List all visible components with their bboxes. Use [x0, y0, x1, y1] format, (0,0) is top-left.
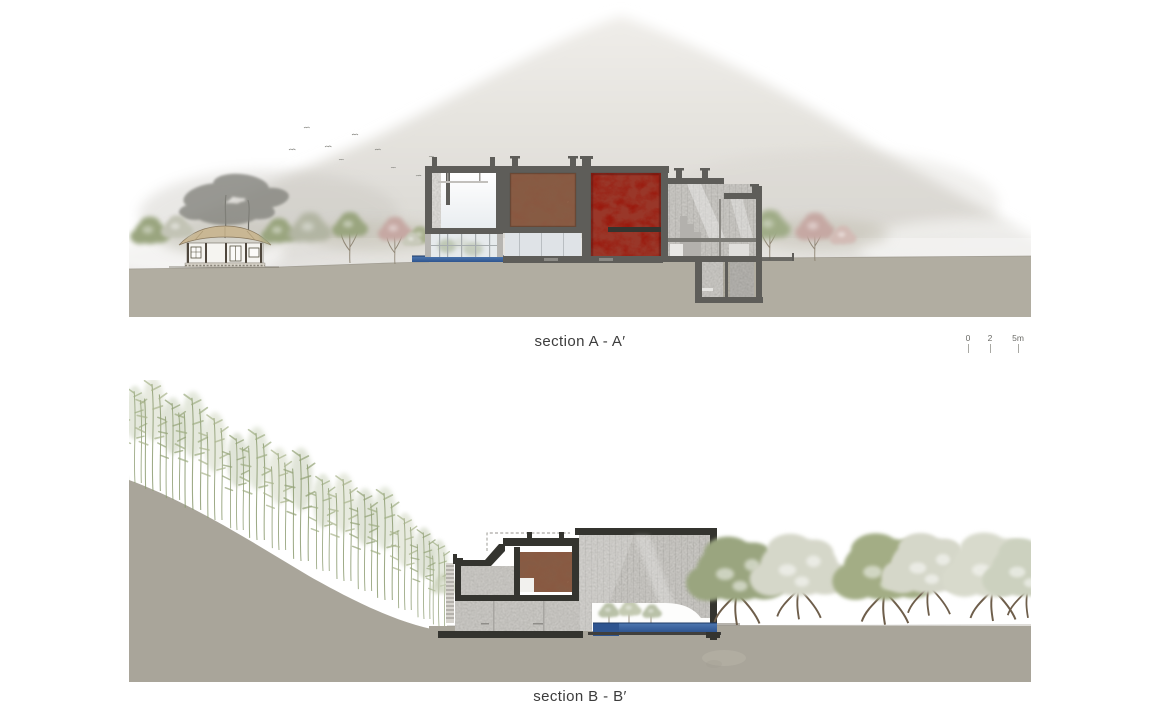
scale-tick-line	[990, 344, 991, 353]
scale-tick-2: 2	[981, 333, 999, 353]
section-a-canvas	[129, 0, 1031, 317]
scale-tick-5m: 5m	[1009, 333, 1027, 353]
earth-feature-wall-a	[510, 173, 576, 227]
building-section-b	[438, 528, 721, 640]
scale-tick-0: 0	[959, 333, 977, 353]
hillside-slope	[129, 480, 447, 682]
section-b-label: section B - B′	[480, 688, 680, 705]
earth-feature-wall-b	[520, 552, 572, 592]
scale-tick-line	[968, 344, 969, 353]
basement-a	[695, 258, 763, 303]
drawing-sheet: section A - A′ 0 2 5m	[0, 0, 1160, 715]
section-a-label: section A - A′	[480, 333, 680, 350]
section-a-drawing	[129, 0, 1031, 322]
tree-row-b	[686, 533, 1031, 626]
section-b-drawing	[129, 380, 1031, 687]
scale-bar: 0 2 5m	[958, 333, 1038, 359]
section-b-canvas	[129, 380, 1031, 682]
scale-tick-line	[1018, 344, 1019, 353]
red-feature-wall	[591, 173, 661, 262]
